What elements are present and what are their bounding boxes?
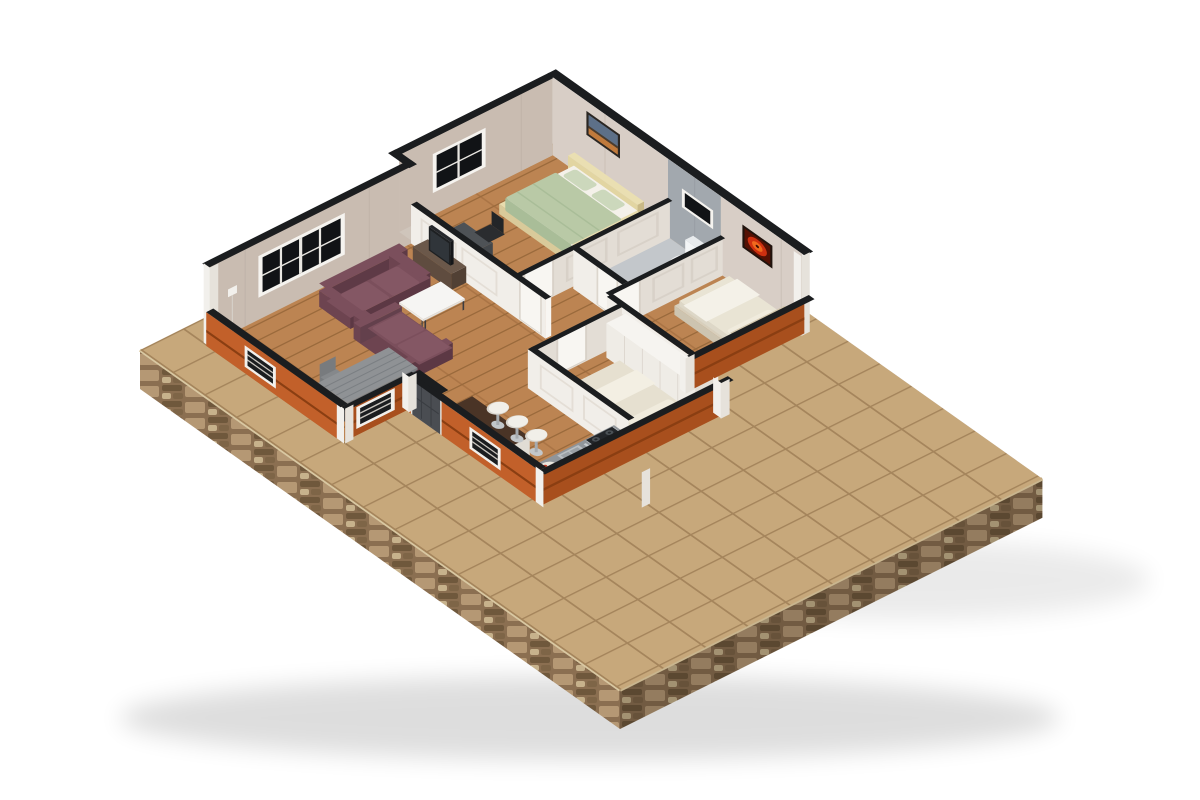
wall-seam	[781, 239, 782, 318]
isometric-scene	[0, 0, 1200, 800]
wall-seam	[245, 248, 246, 326]
wall-seam	[369, 186, 370, 264]
wall-seam	[521, 93, 522, 171]
floor-plan-render	[0, 0, 1200, 800]
corner-post	[536, 467, 544, 508]
switch-cord	[232, 295, 233, 323]
corner-post	[337, 404, 344, 444]
corner-post	[402, 372, 409, 412]
